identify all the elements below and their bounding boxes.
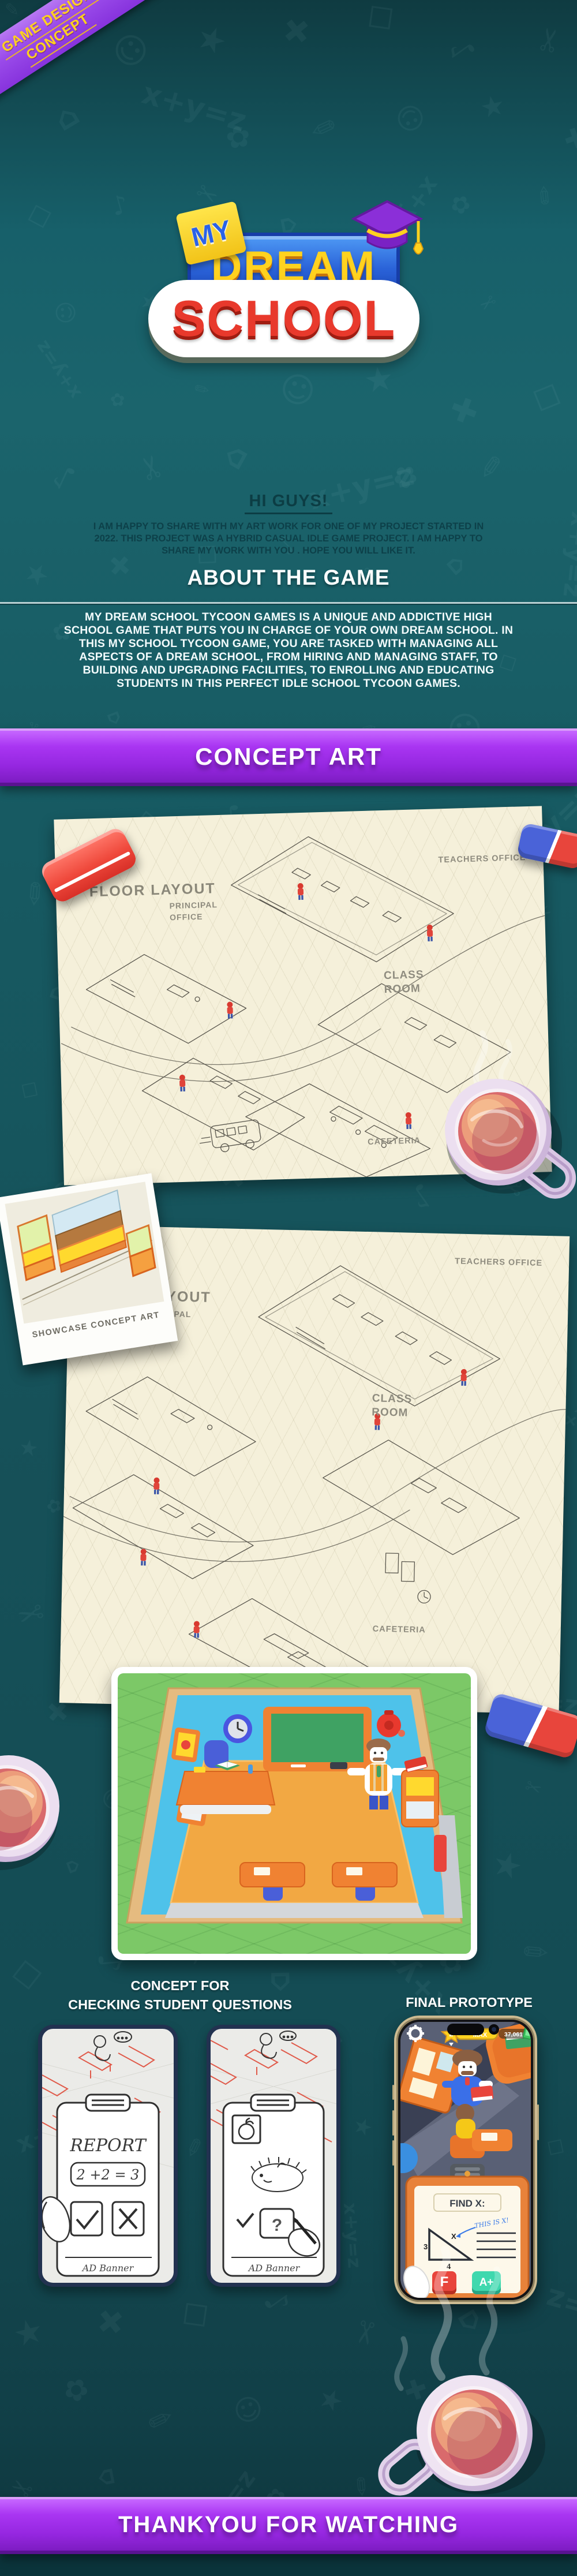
question-icon: ? <box>272 2216 282 2235</box>
phone-volume-down <box>392 2140 394 2166</box>
concept-art-banner-text: CONCEPT ART <box>195 743 382 771</box>
logo-school-band: SCHOOL <box>148 280 419 357</box>
phone-volume-up <box>392 2110 394 2136</box>
final-prototype-heading: FINAL PROTOTYPE <box>395 1995 543 2010</box>
sketch-drawing-2: ? AD Banner <box>211 2029 336 2283</box>
coins-value: 37,061 <box>504 2031 523 2038</box>
game-logo: DREAM MY SCHOOL <box>147 199 430 372</box>
camera-icon <box>489 2024 499 2035</box>
fp1-title: FLOOR LAYOUT <box>89 880 216 900</box>
coffee-cup-right <box>434 1071 577 1207</box>
find-x-title: FIND X: <box>449 2198 485 2209</box>
logo-school-text: SCHOOL <box>172 289 396 348</box>
showcase-polaroid: SHOWCASE CONCEPT ART <box>0 1173 178 1366</box>
sketch-card-report: REPORT 2 +2 = 3 AD Banner <box>38 2025 178 2287</box>
classroom-render <box>118 1673 471 1954</box>
showcase-concept-drawing <box>5 1182 164 1323</box>
fp2-teachers-office-label: TEACHERS OFFICE <box>455 1257 542 1268</box>
dynamic-island <box>447 2024 484 2035</box>
phone-mockup: MAX 2 37,061 <box>394 2016 537 2304</box>
chalkboard <box>263 1707 372 1775</box>
coffee-cup-bottom <box>332 2342 577 2500</box>
cq-heading-line2: CHECKING STUDENT QUESTIONS <box>30 1995 330 2014</box>
intro-body: I AM HAPPY TO SHARE WITH MY ART WORK FOR… <box>88 521 489 556</box>
fp1-cafeteria: CAFETERIA <box>368 1136 421 1147</box>
intro-heading: HI GUYS! <box>245 492 333 514</box>
phone-power-button <box>537 2104 539 2140</box>
phone-screen: MAX 2 37,061 <box>400 2022 531 2298</box>
intro-heading-wrap: HI GUYS! <box>0 492 577 514</box>
coffee-cup-left <box>0 1748 70 1883</box>
fp1-class-1: CLASS <box>384 969 424 982</box>
sketch-card-drawing: ? AD Banner <box>207 2025 340 2287</box>
page: ✎☺★✚◻♪✂⌂x+y=z✿✎☺★✚◻♪✂⌂x+y=z✿✎☺★✚◻♪✂⌂x+y=… <box>0 0 577 2576</box>
fp1-class-2: ROOM <box>384 982 421 996</box>
footer-banner: THANKYOU FOR WATCHING <box>0 2497 577 2554</box>
fp2-cafeteria: CAFETERIA <box>373 1624 426 1635</box>
triangle-side-x: X <box>451 2232 456 2241</box>
showcase-photo <box>5 1182 164 1323</box>
student-sketch-2 <box>260 2031 296 2058</box>
phone-mute-switch <box>392 2085 394 2100</box>
coffee-cup-drawing <box>434 1071 577 1204</box>
sketch1-ad-label: AD Banner <box>81 2263 134 2274</box>
classroom-render-card <box>111 1667 477 1960</box>
footer-text: THANKYOU FOR WATCHING <box>118 2512 459 2538</box>
sketch-drawing-1: REPORT 2 +2 = 3 AD Banner <box>42 2029 174 2283</box>
concept-questions-heading: CONCEPT FOR CHECKING STUDENT QUESTIONS <box>30 1976 330 2014</box>
fp2-class-2: ROOM <box>372 1406 409 1419</box>
concept-art-banner: CONCEPT ART <box>0 728 577 786</box>
clock-icon <box>223 1714 252 1743</box>
game-screenshot: MAX 2 37,061 <box>400 2022 531 2298</box>
graduation-cap-icon <box>342 189 429 275</box>
about-body: MY DREAM SCHOOL TYCOON GAMES IS A UNIQUE… <box>63 611 514 690</box>
clipboard-sketch: REPORT 2 +2 = 3 AD Banner <box>57 2095 159 2276</box>
fp1-principal-1: PRINCIPAL <box>169 900 218 910</box>
clipboard-sketch-2: ? AD Banner <box>223 2095 324 2276</box>
student-sketch <box>94 2032 132 2061</box>
about-heading: ABOUT THE GAME <box>0 566 577 590</box>
fp1-principal-2: OFFICE <box>170 912 203 922</box>
coffee-cup-drawing-2 <box>0 1748 70 1880</box>
divider-line <box>0 602 577 604</box>
classroom-3d-drawing <box>118 1673 471 1954</box>
sketch1-title: REPORT <box>69 2136 147 2156</box>
coffee-cup-drawing-3 <box>332 2342 577 2497</box>
triangle-side-a: 3 <box>424 2242 428 2251</box>
fp1-teachers-office-label: TEACHERS OFFICE <box>438 853 526 865</box>
clipboard-ui: FIND X: 3 4 X THIS IS X! F <box>400 2164 529 2298</box>
logo-my-text: MY <box>188 214 234 253</box>
sketch1-equation: 2 +2 = 3 <box>76 2167 140 2183</box>
sketch2-ad-label: AD Banner <box>248 2263 301 2274</box>
cq-heading-line1: CONCEPT FOR <box>30 1976 330 1995</box>
fp2-class-1: CLASS <box>372 1392 413 1405</box>
